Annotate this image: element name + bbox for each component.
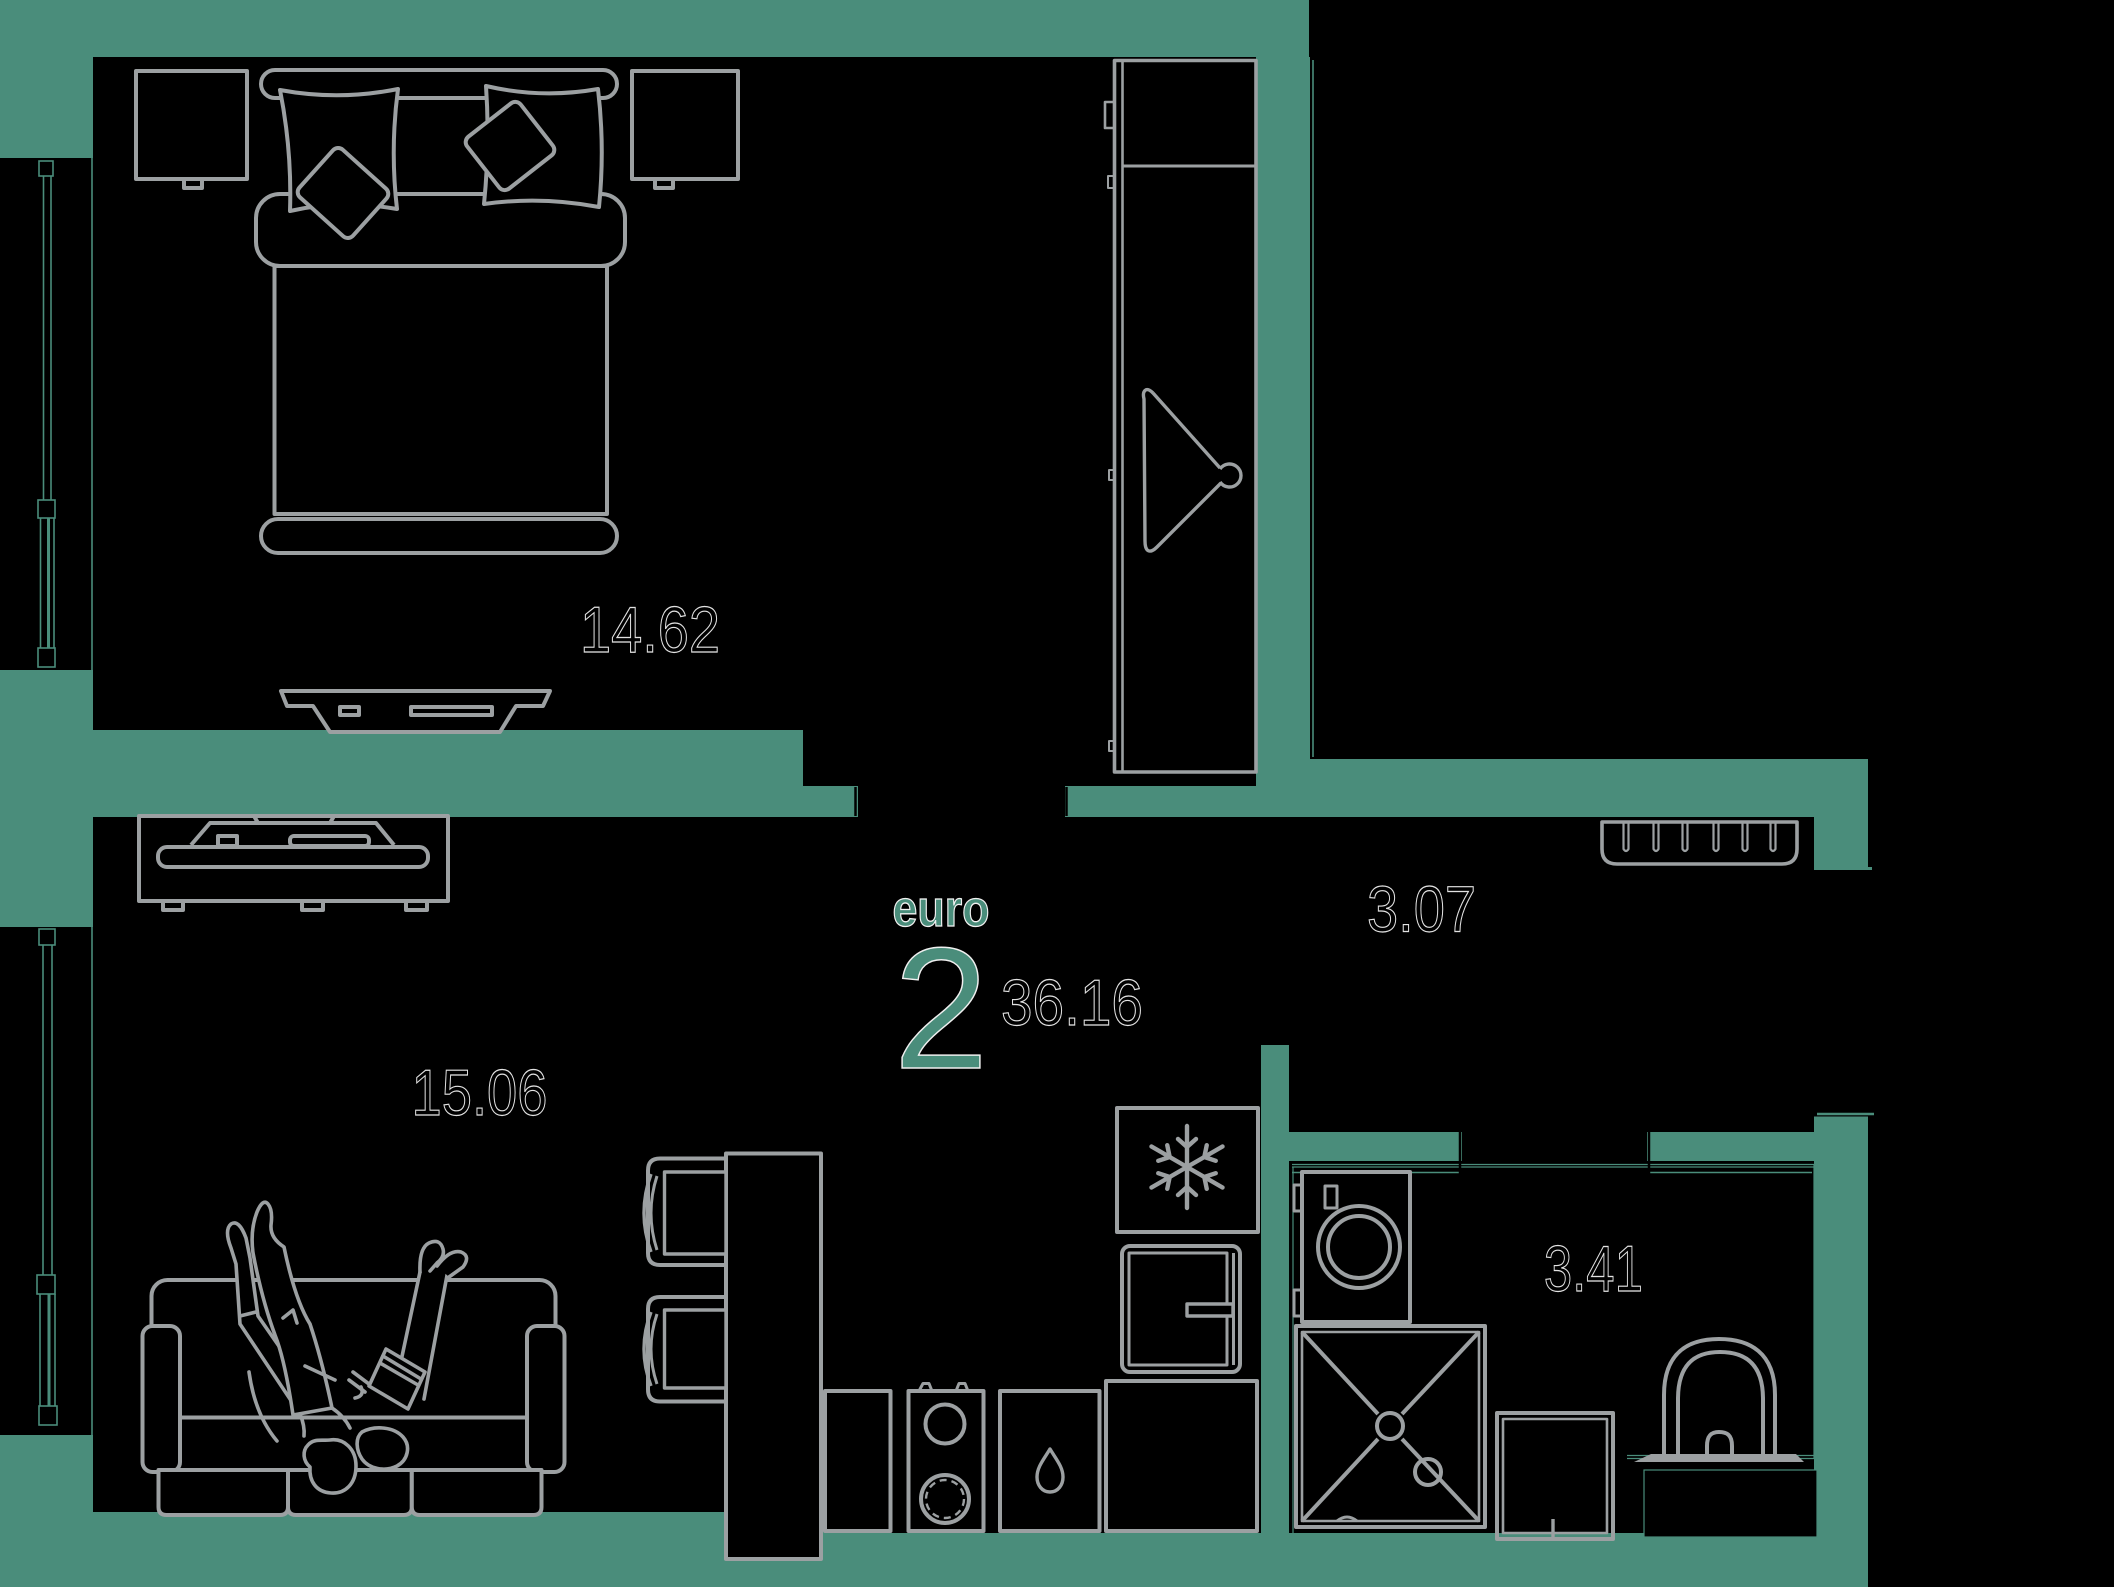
svg-text:36.16: 36.16 bbox=[1001, 966, 1143, 1039]
svg-text:2: 2 bbox=[894, 911, 989, 1105]
svg-text:14.62: 14.62 bbox=[580, 593, 720, 666]
svg-text:15.06: 15.06 bbox=[412, 1056, 548, 1129]
svg-text:3.41: 3.41 bbox=[1544, 1232, 1643, 1305]
svg-text:3.07: 3.07 bbox=[1367, 873, 1476, 946]
